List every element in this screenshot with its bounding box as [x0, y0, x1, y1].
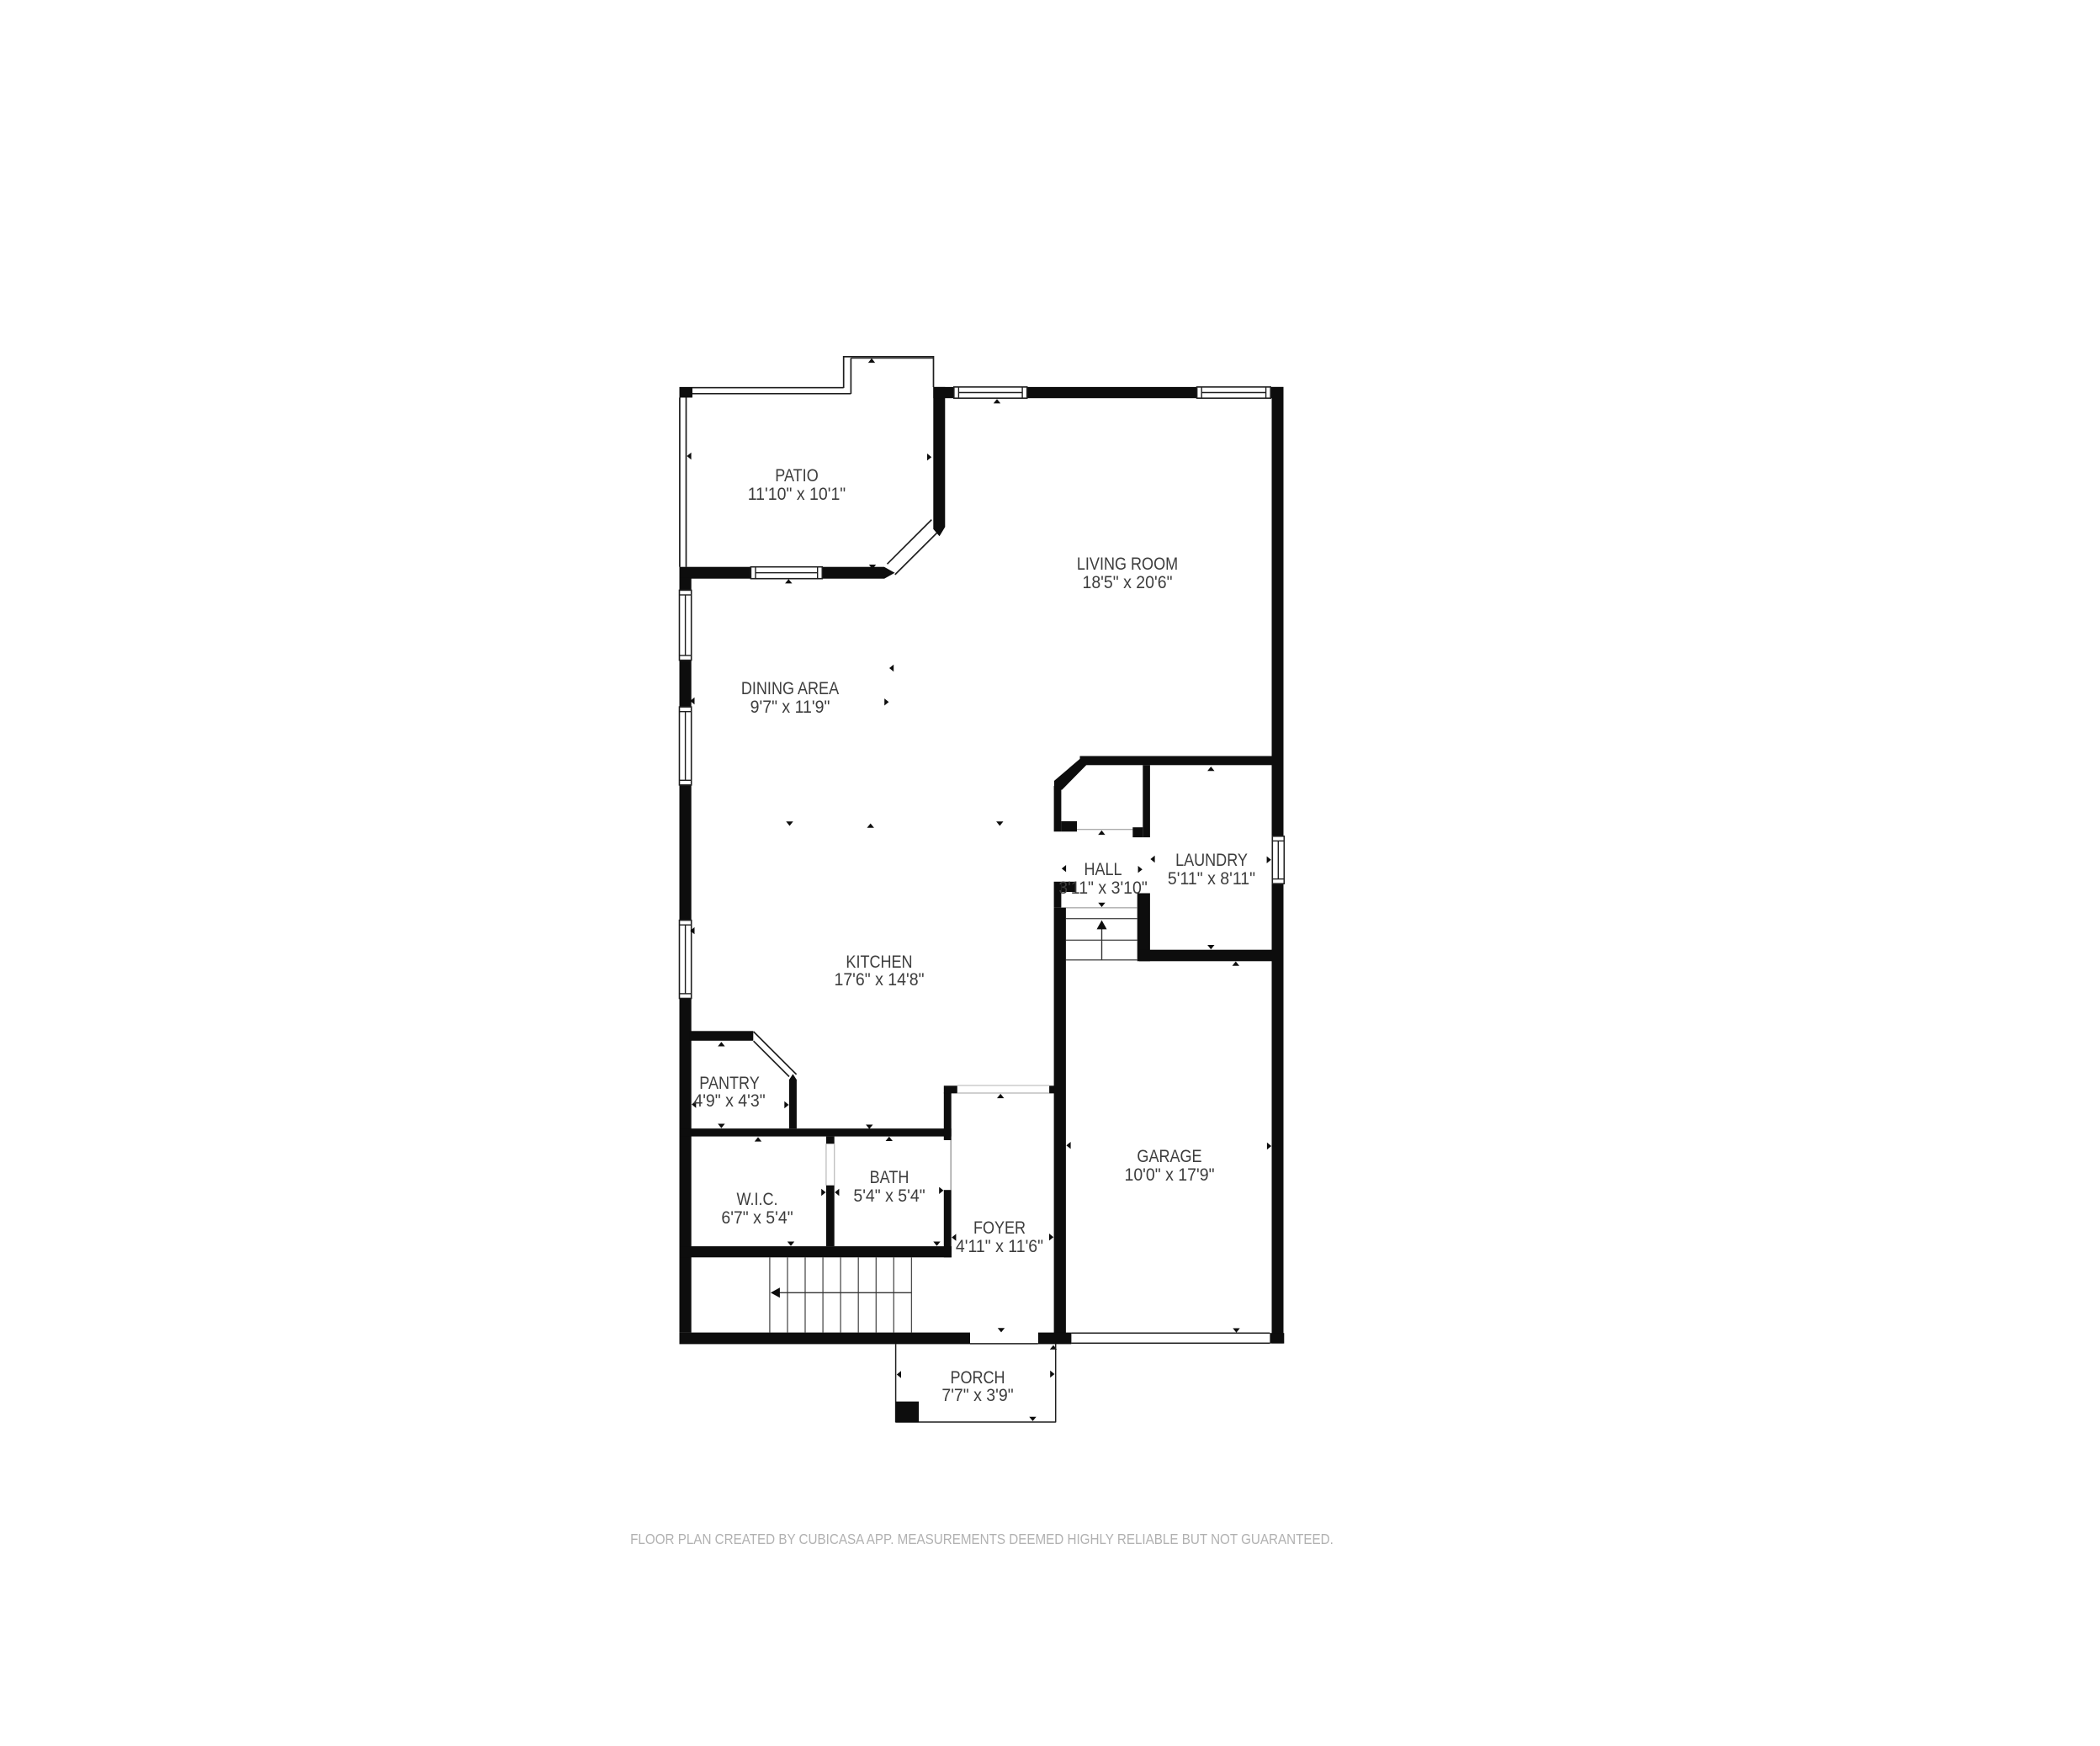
svg-text:4'9" x 4'3": 4'9" x 4'3" [693, 1091, 765, 1111]
svg-text:LAUNDRY: LAUNDRY [1175, 851, 1248, 871]
svg-text:FOYER: FOYER [973, 1218, 1026, 1239]
svg-text:HALL: HALL [1084, 860, 1122, 880]
svg-text:3'11" x 3'10": 3'11" x 3'10" [1058, 878, 1148, 898]
svg-text:18'5" x 20'6": 18'5" x 20'6" [1082, 573, 1172, 592]
svg-text:7'7" x 3'9": 7'7" x 3'9" [941, 1386, 1013, 1405]
svg-text:PATIO: PATIO [775, 466, 818, 486]
svg-text:PORCH: PORCH [950, 1368, 1005, 1388]
svg-text:17'6" x 14'8": 17'6" x 14'8" [834, 970, 924, 990]
svg-text:BATH: BATH [870, 1168, 909, 1188]
svg-text:DINING AREA: DINING AREA [741, 679, 840, 699]
svg-text:11'10" x 10'1": 11'10" x 10'1" [748, 485, 846, 504]
svg-text:LIVING ROOM: LIVING ROOM [1077, 555, 1178, 575]
svg-text:FLOOR PLAN CREATED BY CUBICASA: FLOOR PLAN CREATED BY CUBICASA APP. MEAS… [630, 1531, 1334, 1547]
svg-text:5'11" x 8'11": 5'11" x 8'11" [1168, 869, 1255, 889]
svg-text:9'7" x 11'9": 9'7" x 11'9" [750, 698, 830, 717]
svg-text:5'4" x 5'4": 5'4" x 5'4" [853, 1186, 925, 1206]
svg-text:KITCHEN: KITCHEN [846, 953, 912, 973]
svg-text:GARAGE: GARAGE [1137, 1147, 1201, 1167]
svg-text:PANTRY: PANTRY [699, 1074, 759, 1094]
svg-text:W.I.C.: W.I.C. [736, 1190, 777, 1210]
svg-text:4'11" x 11'6": 4'11" x 11'6" [956, 1237, 1043, 1256]
svg-text:6'7" x 5'4": 6'7" x 5'4" [721, 1208, 793, 1228]
svg-text:10'0" x 17'9": 10'0" x 17'9" [1124, 1165, 1214, 1185]
